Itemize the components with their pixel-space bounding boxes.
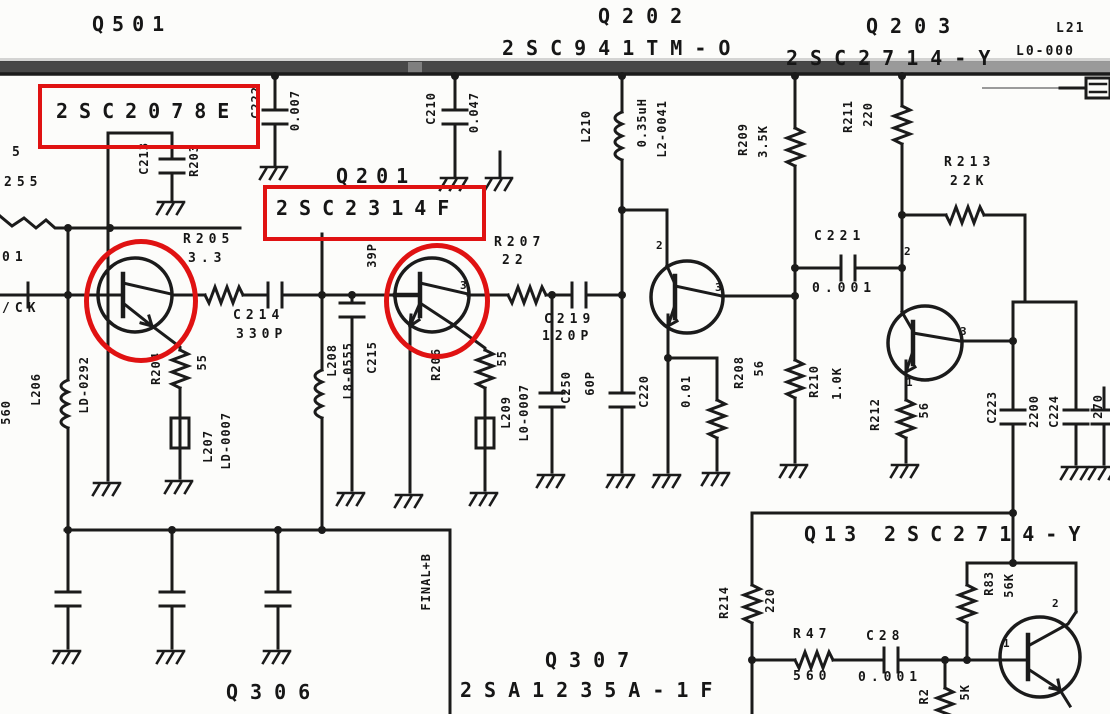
label-r83: R83 [983,571,995,596]
label-r47: R47 [793,628,831,641]
label-r207-value: 22 [502,254,528,267]
label-c214: C214 [233,309,284,322]
label-l0-000: L0-000 [1016,45,1075,58]
label-r208-value: 56 [753,360,765,376]
label-l210: L210 [580,110,592,143]
label-c28: C28 [866,630,904,643]
label-q202-part: 2SC941TM-O [502,38,742,58]
label-c250: C250 [560,371,572,404]
label-c221: C221 [814,230,865,243]
label-q203: Q203 [866,16,962,36]
label-q307: Q307 [545,650,641,670]
label-c219: C219 [544,313,595,326]
label-r203: R203 [188,144,200,177]
label-r212: R212 [869,398,881,431]
label-l210-part: L2-0041 [656,100,668,158]
label-r213-value: 22K [950,175,988,188]
pin-digit: 1 [906,377,913,388]
label-r2-cut: R2 [918,688,930,704]
label-r211: R211 [842,100,854,133]
label-edge-255: 255 [4,176,42,189]
label-r204-value: 55 [196,354,208,370]
label-r47-value: 560 [793,670,831,683]
label-q13-part: 2SC2714-Y [884,524,1091,544]
label-l206-part: LD-0292 [78,356,90,414]
label-l207: L207 [202,430,214,463]
label-l208: L208 [326,344,338,377]
label-r206-value: 55 [496,350,508,366]
label-edge-560: 560 [0,400,12,425]
label-l206: L206 [30,373,42,406]
label-c221-value: 0.001 [812,282,876,295]
label-r205-value: 3.3 [188,252,226,265]
label-c210: C210 [425,92,437,125]
label-r211-value: 220 [862,102,874,127]
label-c215: C215 [366,341,378,374]
q501-section-wires [0,76,512,530]
label-c220: C220 [638,375,650,408]
pin-digit: 2 [656,240,663,251]
label-c219-value: 120P [542,330,593,343]
label-l209: L209 [500,396,512,429]
label-c220-value: 0.01 [680,375,692,408]
label-edge-270: 270 [1092,394,1104,419]
label-q202: Q202 [598,6,694,26]
label-q307-part: 2SA1235A-1F [460,680,724,700]
pin-digit: 2 [904,246,911,257]
label-r213: R213 [944,156,995,169]
pin-digit: 2 [1052,598,1059,609]
label-l210-value: 0.35uH [636,98,648,147]
label-c215-value: 39P [366,243,378,268]
transistor-q201 [395,258,469,332]
label-r212-value: 56 [918,402,930,418]
label-2sc2314f: 2SC2314F [276,198,460,218]
label-c222: C222 [250,86,262,119]
label-q203-part: 2SC2714-Y [786,48,1002,68]
label-ck: /CK [2,302,40,315]
pin-digit: 3 [960,326,967,337]
pin-digit: 3 [460,280,467,291]
label-c214-value: 330P [236,328,287,341]
label-c28-value: 0.001 [858,671,922,684]
label-l21: L21 [1056,22,1085,35]
label-q201: Q201 [336,166,416,186]
label-l208-part: L8-0555 [342,342,354,400]
label-2sc2078e: 2SC2078E [56,101,240,121]
label-c213: C213 [138,142,150,175]
label-l207-part: LD-0007 [220,412,232,470]
label-c222-value: 0.007 [289,90,301,131]
transistor-q203 [888,306,962,380]
label-r210-value: 1.0K [831,367,843,400]
label-l209-part: L0-0007 [518,384,530,442]
label-r214: R214 [718,586,730,619]
label-r205: R205 [183,233,234,246]
label-c223: C223 [986,391,998,424]
label-final-b: FINAL+B [420,553,432,611]
label-r204: R204 [150,352,162,385]
label-r209-value: 3.5K [757,125,769,158]
label-edge-01: 01 [2,251,28,264]
transistor-q501 [98,258,172,332]
label-c224: C224 [1048,395,1060,428]
pin-digit: 3 [715,282,722,293]
schematic-scan: Q501Q2022SC941TM-OQ2032SC2714-YL21L0-000… [0,0,1110,714]
label-c210-value: 0.047 [468,92,480,133]
label-5k: 5K [959,684,971,700]
label-edge-5: 5 [12,146,25,159]
pin-digit: 1 [1003,638,1010,649]
label-q13: Q13 [804,524,864,544]
label-c224-value: 2200 [1028,395,1040,428]
label-q501: Q501 [92,14,172,34]
label-c250-value: 60P [584,371,596,396]
label-r214-value: 220 [764,588,776,613]
label-r206: R206 [430,348,442,381]
label-r208: R208 [733,356,745,389]
label-r210: R210 [808,365,820,398]
transistor-q202 [651,261,723,333]
label-r207: R207 [494,236,545,249]
label-q306: Q306 [226,682,322,702]
label-r83-value: 56K [1003,573,1015,598]
transistor-q13 [1000,612,1080,706]
label-r209: R209 [737,123,749,156]
q203-section-wires [780,76,1110,563]
